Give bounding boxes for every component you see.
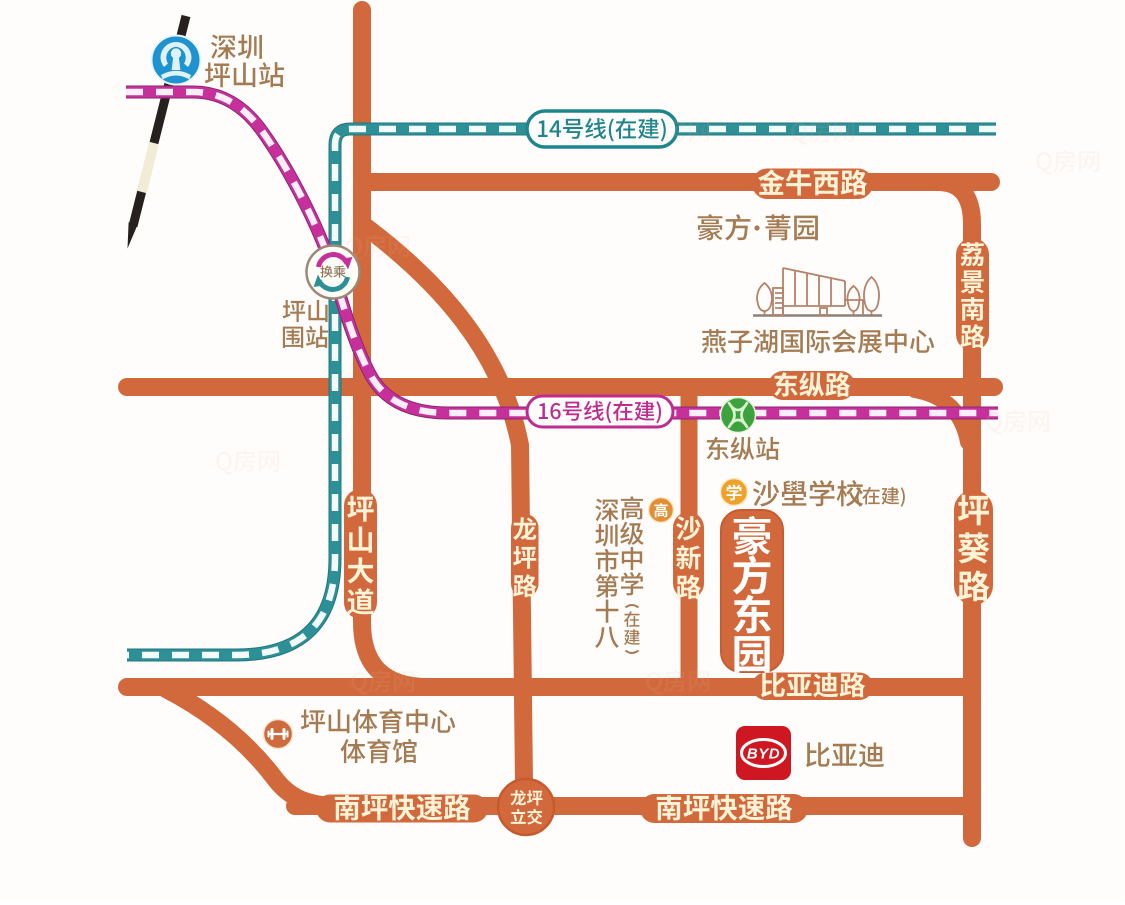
svg-text:BYD: BYD — [747, 746, 780, 763]
